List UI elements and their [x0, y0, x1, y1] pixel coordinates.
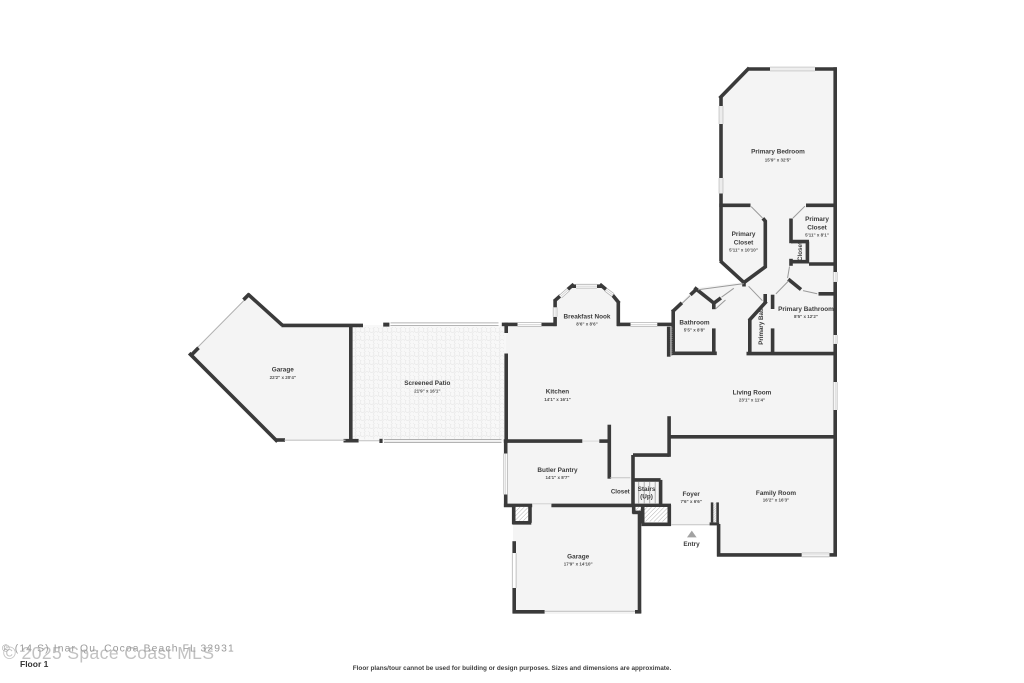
svg-text:Primary Bedroom: Primary Bedroom — [751, 149, 805, 156]
svg-text:Closet: Closet — [807, 225, 827, 232]
svg-text:Primary: Primary — [732, 231, 756, 238]
svg-text:14'1" x 16'1": 14'1" x 16'1" — [544, 397, 570, 402]
svg-text:5'11" x 8'1": 5'11" x 8'1" — [805, 233, 829, 238]
svg-text:Primary Bathroom: Primary Bathroom — [778, 306, 834, 313]
svg-text:Closet: Closet — [797, 242, 804, 261]
svg-text:8'6" x 8'6": 8'6" x 8'6" — [576, 321, 597, 326]
svg-text:15'9" x 32'5": 15'9" x 32'5" — [765, 158, 791, 163]
svg-text:5'5" x 8'8": 5'5" x 8'8" — [684, 328, 705, 333]
svg-text:Primary Bath: Primary Bath — [758, 306, 765, 345]
svg-text:Closet: Closet — [611, 488, 630, 495]
svg-text:17'9" x 14'10": 17'9" x 14'10" — [564, 562, 593, 567]
svg-text:Garage: Garage — [567, 554, 589, 561]
svg-text:Screened Patio: Screened Patio — [404, 380, 450, 387]
svg-text:© (14 S) Inar Qu. Cocoa Beach: © (14 S) Inar Qu. Cocoa Beach FL 32931 — [2, 644, 235, 655]
svg-text:Stairs: Stairs — [638, 486, 656, 493]
svg-text:21'9" x 16'1": 21'9" x 16'1" — [414, 389, 440, 394]
svg-text:5'11" x 10'10": 5'11" x 10'10" — [729, 248, 758, 253]
svg-text:8'5" x 12'2": 8'5" x 12'2" — [794, 314, 818, 319]
svg-text:Closet: Closet — [734, 240, 754, 247]
svg-text:14'1" x 8'7": 14'1" x 8'7" — [546, 475, 570, 480]
svg-text:22'2" x 20'4": 22'2" x 20'4" — [270, 375, 296, 380]
svg-text:Garage: Garage — [272, 367, 294, 374]
svg-text:Family Room: Family Room — [756, 490, 796, 497]
svg-text:7'6" x 6'6": 7'6" x 6'6" — [680, 499, 701, 504]
svg-text:Bathroom: Bathroom — [679, 320, 709, 327]
svg-text:Kitchen: Kitchen — [546, 389, 570, 396]
svg-text:Breakfast Nook: Breakfast Nook — [564, 313, 611, 320]
svg-text:Primary: Primary — [805, 216, 829, 223]
svg-text:Living Room: Living Room — [733, 389, 772, 396]
svg-text:(Up): (Up) — [640, 494, 653, 501]
svg-text:Butler Pantry: Butler Pantry — [537, 467, 578, 474]
svg-text:Entry: Entry — [683, 541, 700, 548]
svg-text:23'1" x 11'4": 23'1" x 11'4" — [739, 397, 765, 402]
svg-text:16'2" x 16'3": 16'2" x 16'3" — [763, 498, 789, 503]
svg-text:Foyer: Foyer — [682, 491, 700, 498]
svg-text:Floor plans/tour cannot be use: Floor plans/tour cannot be used for buil… — [353, 665, 672, 672]
